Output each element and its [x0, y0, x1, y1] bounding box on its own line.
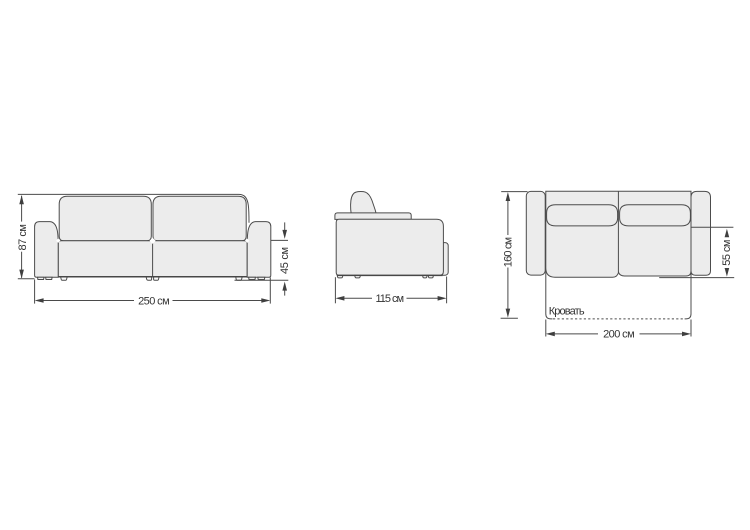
svg-text:250 см: 250 см: [138, 295, 169, 307]
svg-text:45 см: 45 см: [279, 247, 291, 274]
svg-text:87 см: 87 см: [17, 225, 29, 251]
svg-text:200 см: 200 см: [603, 328, 634, 340]
svg-text:160 см: 160 см: [503, 238, 515, 268]
svg-text:115 см: 115 см: [375, 293, 403, 305]
svg-text:55 см: 55 см: [721, 240, 733, 266]
svg-text:Кровать: Кровать: [549, 305, 585, 317]
